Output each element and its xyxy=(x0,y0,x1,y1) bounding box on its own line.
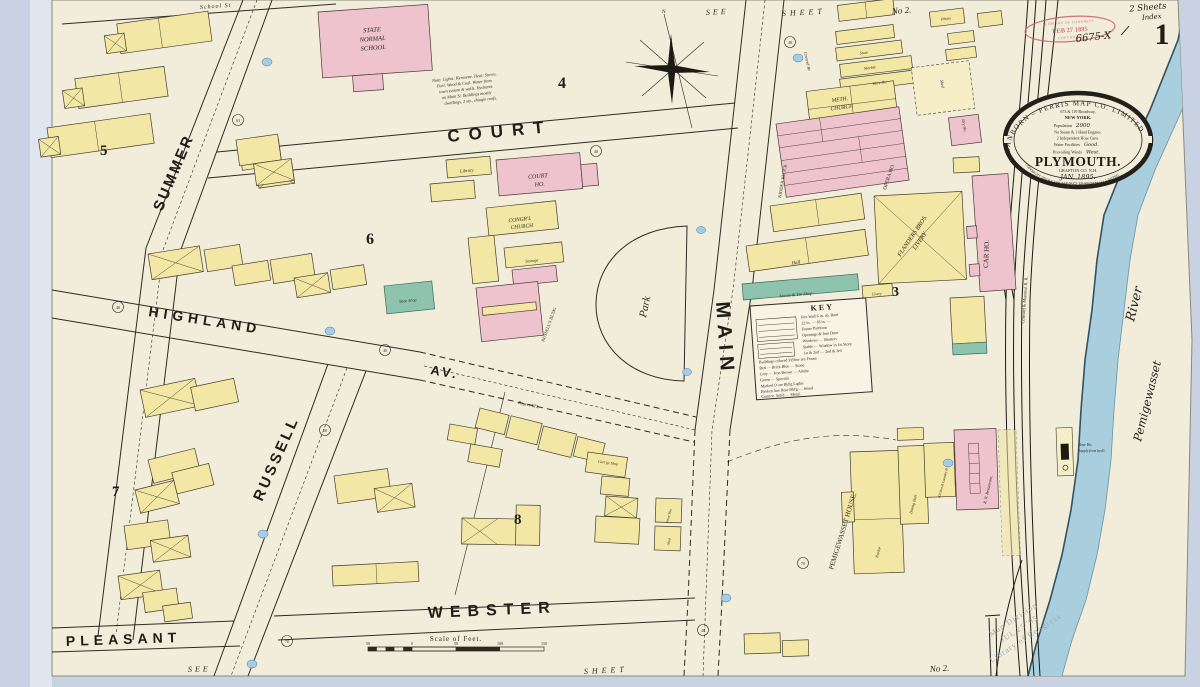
block7-number: 7 xyxy=(112,484,120,500)
svg-text:0: 0 xyxy=(411,641,413,646)
svg-text:50: 50 xyxy=(323,428,327,433)
svg-text:50: 50 xyxy=(454,641,458,646)
svg-text:100: 100 xyxy=(497,641,503,646)
hose-note-1: Hose Ho. xyxy=(1077,443,1092,447)
seal-hose-carts: 2 Independent Hose Carts. xyxy=(1057,136,1099,141)
seal-city-name: PLYMOUTH. xyxy=(1035,154,1121,169)
edge-top-see: SEE xyxy=(706,7,729,17)
sanborn-seal: SANBORN – PERRIS MAP CO. LIMITED COPYRIG… xyxy=(1004,93,1152,187)
block5-number: 5 xyxy=(100,143,108,159)
map-key: KEY Fire Wall 6 in. ab. Roof 12 in. — 18… xyxy=(750,298,872,400)
compass-north-label: N xyxy=(662,10,666,15)
block8-number: 8 xyxy=(514,512,522,528)
svg-text:40: 40 xyxy=(116,305,120,310)
seal-date: JAN. 1895. xyxy=(1058,173,1095,181)
seal-population-label: Population xyxy=(1054,123,1073,128)
seal-water-label: Water Facilities xyxy=(1054,142,1081,147)
court-ho-label-2: HO. xyxy=(534,182,546,189)
edge-top-no2: No 2. xyxy=(890,5,911,16)
block3-number: 3 xyxy=(892,285,899,300)
seal-water-value: Good. xyxy=(1084,142,1099,148)
svg-text:40: 40 xyxy=(594,149,598,154)
svg-text:40: 40 xyxy=(701,628,705,633)
seal-scale: SCALE 50 FT. TO AN INCH. xyxy=(1057,181,1098,185)
edge-bottom-see: SEE xyxy=(188,664,211,674)
svg-text:70: 70 xyxy=(801,561,805,566)
edge-bottom-no2: No 2. xyxy=(928,663,949,674)
svg-text:150: 150 xyxy=(541,641,547,646)
sanborn-map-sheet: Concord & Montreal R. R. Park xyxy=(0,0,1200,687)
svg-text:KEY: KEY xyxy=(810,302,834,313)
hose-note-2: Supply from hyd't. xyxy=(1078,449,1106,453)
seal-population-value: 2000 xyxy=(1075,123,1090,129)
seal-engines: No Steam & 1 Hand Engines. xyxy=(1054,130,1102,135)
car-ho-label: CAR HO. xyxy=(982,240,991,269)
svg-text:70: 70 xyxy=(285,639,289,644)
store-label: Store xyxy=(859,49,868,55)
sheet-number: 1 xyxy=(1155,18,1170,51)
seal-city: NEW YORK. xyxy=(1065,115,1092,120)
cistern-hotel xyxy=(943,459,953,467)
hose-house xyxy=(1056,427,1074,476)
svg-text:40: 40 xyxy=(383,348,387,353)
scan-margin-strip xyxy=(30,0,52,687)
svg-text:63: 63 xyxy=(236,118,240,123)
school-label-1: STATE xyxy=(363,26,381,34)
svg-text:40: 40 xyxy=(788,40,792,45)
block6-number: 6 xyxy=(366,231,374,248)
block4-number: 4 xyxy=(558,75,566,92)
svg-text:50: 50 xyxy=(366,641,370,646)
